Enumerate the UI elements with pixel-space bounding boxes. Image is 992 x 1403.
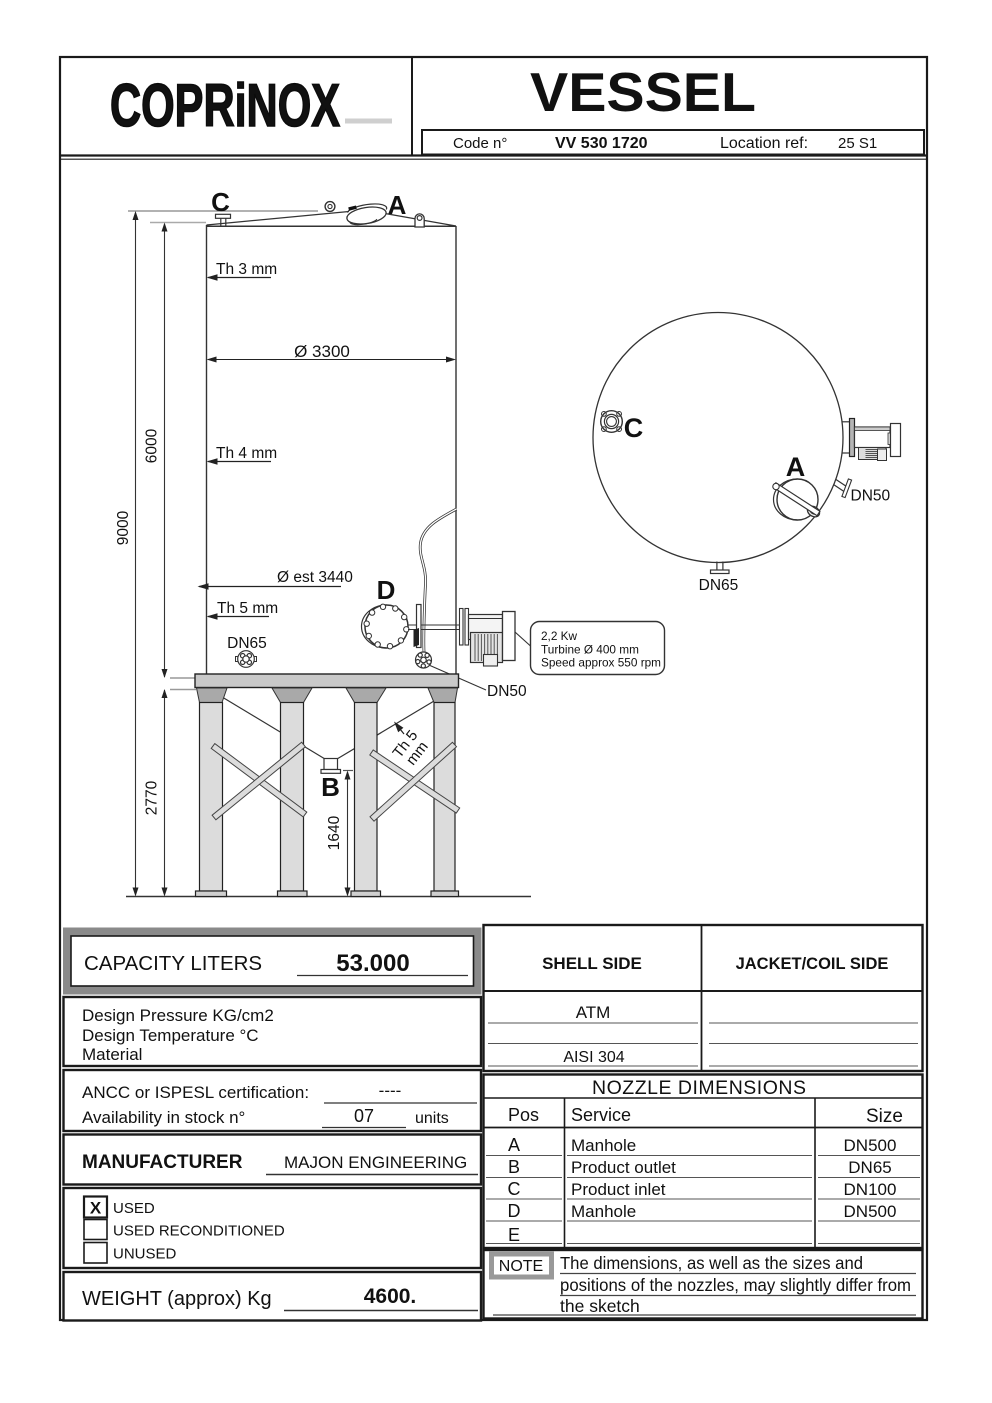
svg-text:ATM: ATM: [576, 1003, 611, 1022]
svg-text:Service: Service: [571, 1105, 631, 1125]
svg-text:Product inlet: Product inlet: [571, 1180, 666, 1199]
svg-text:DN500: DN500: [844, 1136, 897, 1155]
svg-text:JACKET/COIL SIDE: JACKET/COIL SIDE: [736, 955, 889, 973]
svg-text:07: 07: [354, 1106, 374, 1126]
svg-text:MANUFACTURER: MANUFACTURER: [82, 1152, 243, 1173]
svg-text:positions of the nozzles, may: positions of the nozzles, may slightly d…: [560, 1275, 911, 1295]
svg-text:53.000: 53.000: [336, 950, 409, 977]
svg-text:SHELL SIDE: SHELL SIDE: [542, 954, 642, 973]
svg-text:A: A: [786, 452, 806, 482]
svg-text:2,2 Kw: 2,2 Kw: [541, 629, 578, 643]
svg-text:DN65: DN65: [848, 1158, 891, 1177]
svg-text:C: C: [211, 187, 230, 217]
svg-text:9000: 9000: [115, 510, 132, 545]
svg-text:The dimensions, as well as the: The dimensions, as well as the sizes and: [560, 1253, 863, 1273]
svg-text:A: A: [508, 1135, 520, 1155]
svg-text:A: A: [388, 190, 407, 220]
svg-text:Product outlet: Product outlet: [571, 1158, 676, 1177]
svg-text:Location ref:: Location ref:: [720, 135, 808, 152]
svg-text:UNUSED: UNUSED: [113, 1246, 177, 1263]
svg-text:2770: 2770: [144, 780, 161, 815]
svg-text:units: units: [415, 1110, 449, 1127]
svg-text:ANCC or ISPESL certification: ANCC or ISPESL certification:: [82, 1083, 309, 1102]
svg-text:B: B: [508, 1157, 520, 1177]
svg-text:DN65: DN65: [227, 635, 267, 652]
svg-text:Ø est 3440: Ø est 3440: [277, 569, 353, 586]
svg-text:DN500: DN500: [844, 1202, 897, 1221]
svg-text:Size: Size: [866, 1106, 903, 1127]
svg-text:DN50: DN50: [487, 683, 527, 700]
svg-text:D: D: [377, 575, 396, 605]
svg-text:VV 530 1720: VV 530 1720: [555, 135, 648, 152]
svg-text:Design Pressure KG/cm2: Design Pressure KG/cm2: [82, 1006, 274, 1025]
svg-text:Th 4 mm: Th 4 mm: [216, 445, 277, 462]
svg-text:VESSEL: VESSEL: [530, 61, 756, 123]
svg-text:C: C: [624, 413, 644, 443]
svg-text:NOTE: NOTE: [499, 1258, 543, 1275]
svg-text:DN100: DN100: [844, 1180, 897, 1199]
svg-text:E: E: [508, 1225, 520, 1245]
svg-text:Material: Material: [82, 1045, 142, 1064]
svg-text:Th 3 mm: Th 3 mm: [216, 261, 277, 278]
svg-text:NOZZLE DIMENSIONS: NOZZLE DIMENSIONS: [592, 1077, 806, 1099]
svg-text:D: D: [508, 1201, 521, 1221]
svg-text:Manhole: Manhole: [571, 1202, 636, 1221]
svg-text:Pos: Pos: [508, 1105, 539, 1125]
svg-text:AISI 304: AISI 304: [563, 1049, 624, 1066]
svg-text:CAPACITY LITERS: CAPACITY LITERS: [84, 952, 262, 975]
svg-text:B: B: [321, 772, 340, 802]
svg-text:Speed approx 550 rpm: Speed approx 550 rpm: [541, 656, 661, 670]
svg-text:Ø 3300: Ø 3300: [294, 342, 350, 361]
svg-text:X: X: [90, 1199, 102, 1218]
svg-text:Th 5 mm: Th 5 mm: [217, 600, 278, 617]
svg-text:Code n°: Code n°: [453, 135, 507, 152]
svg-text:DN50: DN50: [851, 488, 891, 505]
svg-text:Design Temperature °C: Design Temperature °C: [82, 1026, 259, 1045]
svg-text:the sketch: the sketch: [560, 1296, 640, 1316]
svg-text:----: ----: [379, 1081, 402, 1100]
svg-text:6000: 6000: [144, 428, 161, 463]
svg-text:1640: 1640: [326, 815, 343, 850]
svg-text:USED: USED: [113, 1200, 155, 1217]
svg-text:25 S1: 25 S1: [838, 135, 877, 152]
svg-text:DN65: DN65: [699, 577, 739, 594]
svg-text:USED RECONDITIONED: USED RECONDITIONED: [113, 1223, 285, 1240]
svg-text:WEIGHT (approx) Kg: WEIGHT (approx) Kg: [82, 1288, 272, 1310]
svg-text:Turbine Ø 400 mm: Turbine Ø 400 mm: [541, 643, 639, 657]
svg-text:Availability in stock n°: Availability in stock n°: [82, 1108, 245, 1127]
svg-text:COPRiNOX: COPRiNOX: [110, 72, 340, 139]
svg-text:Manhole: Manhole: [571, 1136, 636, 1155]
svg-text:MAJON ENGINEERING: MAJON ENGINEERING: [284, 1153, 467, 1172]
svg-text:C: C: [508, 1179, 521, 1199]
svg-text:4600.: 4600.: [364, 1285, 417, 1308]
